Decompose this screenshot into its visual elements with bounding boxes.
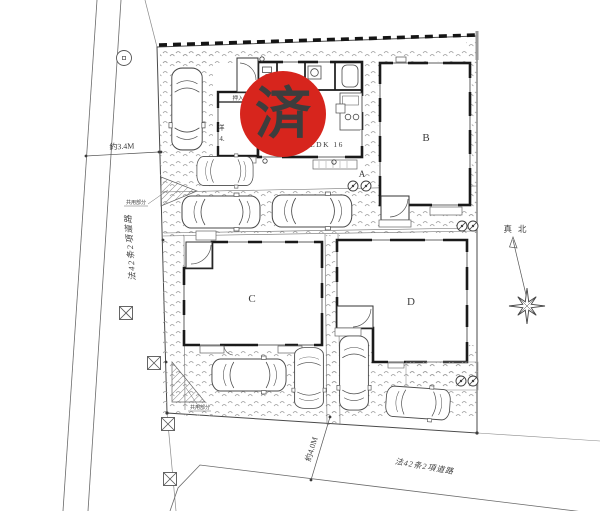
utility-pole-icon xyxy=(120,307,133,320)
meter-icon xyxy=(457,221,467,231)
bathtub-icon xyxy=(342,65,358,87)
car xyxy=(292,348,326,409)
car xyxy=(272,192,352,230)
bottom-road-width: 約4.0M xyxy=(303,436,320,463)
dimension-bottom-road: 約4.0M xyxy=(303,416,332,482)
common-area-lower-label: 共用部分 xyxy=(190,404,210,411)
sold-badge: 済 xyxy=(240,71,326,157)
building-a-label: A xyxy=(359,169,366,179)
meter-icon xyxy=(468,376,478,386)
bottom-road-name: 法42条2項道路 xyxy=(394,457,455,476)
car xyxy=(197,154,253,188)
building-d-label: D xyxy=(407,296,415,308)
meter-icon xyxy=(361,181,371,191)
meter-icon xyxy=(348,181,358,191)
terrace-pavement xyxy=(406,362,478,390)
sold-badge-text: 済 xyxy=(255,84,312,146)
meter-icon xyxy=(456,376,466,386)
manhole-icon xyxy=(117,51,132,66)
site-plan-drawing: 共用部分 共用部分 押入 xyxy=(0,0,600,511)
building-c-label: C xyxy=(248,293,255,305)
left-road-width: 約3.4M xyxy=(109,140,135,151)
bottom-road xyxy=(170,433,600,511)
utility-pole-icon xyxy=(162,418,175,431)
site-plan: 共用部分 共用部分 押入 xyxy=(0,0,600,511)
car xyxy=(337,336,371,410)
compass: 真北 xyxy=(503,224,545,324)
western-room-label: 洋 xyxy=(218,123,225,132)
western-room-size: 4. xyxy=(219,135,225,143)
car xyxy=(169,68,205,150)
car xyxy=(212,356,286,394)
car xyxy=(182,193,260,231)
common-area-upper-label: 共用部分 xyxy=(126,199,146,206)
building-b: B xyxy=(379,57,470,227)
true-north-label: 真北 xyxy=(503,224,532,234)
utility-pole-icon xyxy=(164,473,177,486)
building-c: C xyxy=(184,231,322,355)
dimension-left-road: 約3.4M xyxy=(85,140,161,157)
utility-pole-icon xyxy=(148,357,161,370)
building-b-label: B xyxy=(422,132,429,144)
meter-icon xyxy=(468,221,478,231)
left-road-name: 法42条2項道路 xyxy=(123,213,138,281)
